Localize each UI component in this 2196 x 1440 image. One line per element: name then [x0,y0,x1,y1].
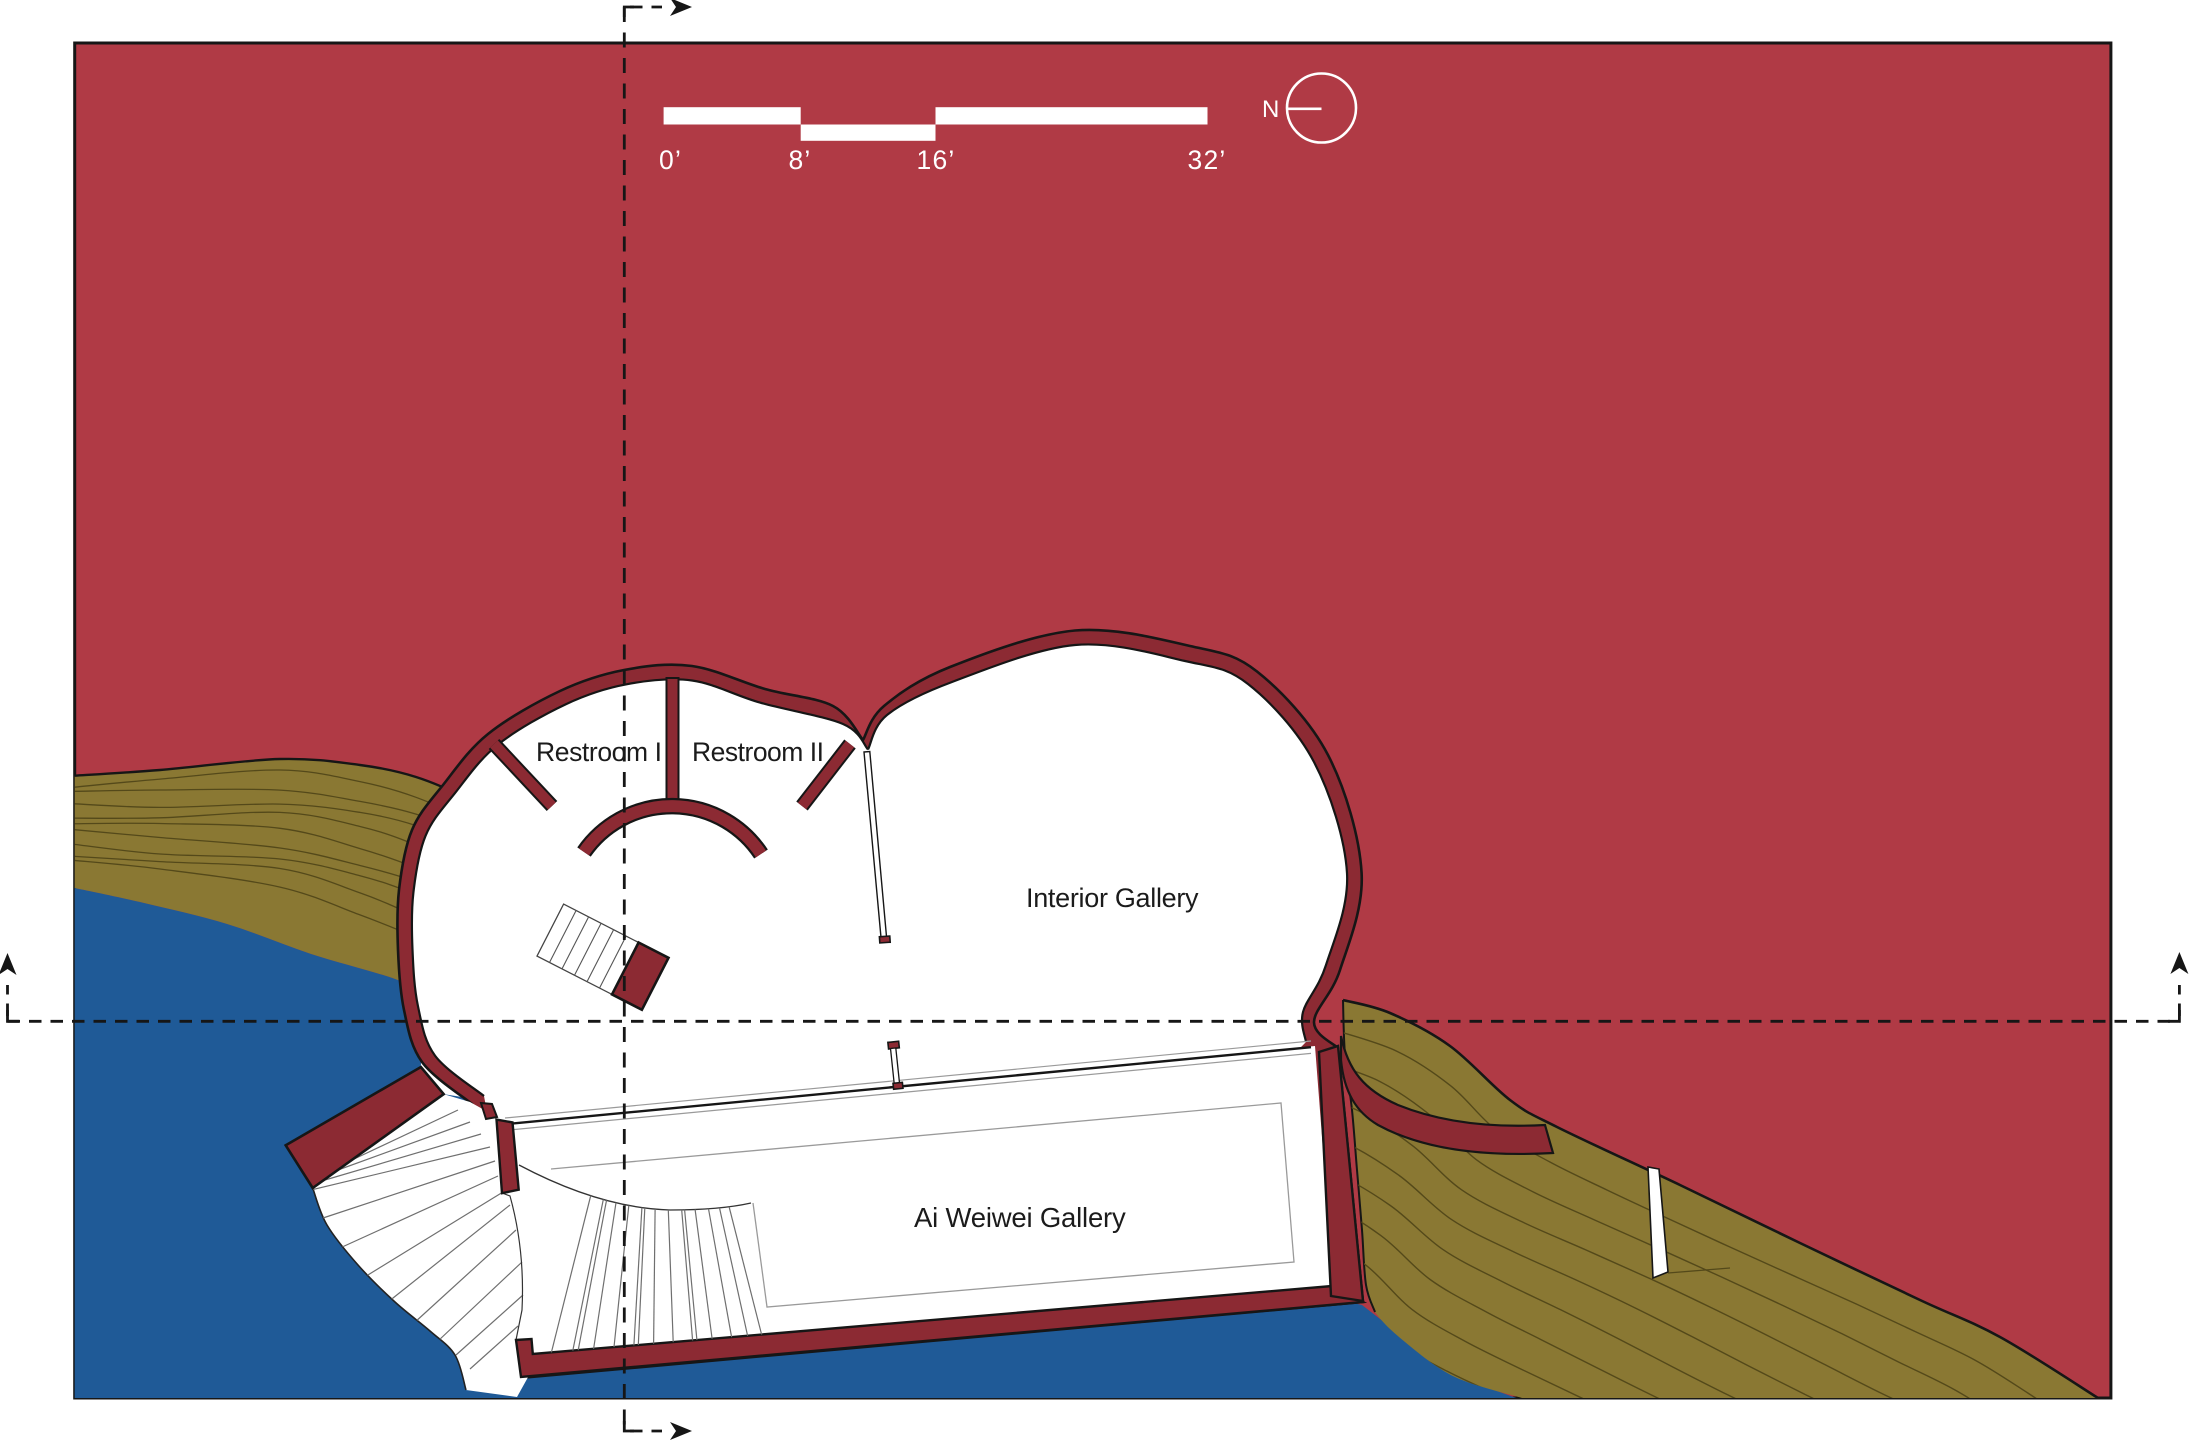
svg-text:0’: 0’ [659,145,682,175]
svg-text:Restroom I: Restroom I [536,737,662,767]
svg-text:8’: 8’ [788,145,811,175]
svg-text:32’: 32’ [1188,145,1227,175]
svg-text:Restroom II: Restroom II [692,737,823,767]
svg-text:Ai Weiwei Gallery: Ai Weiwei Gallery [914,1202,1126,1233]
svg-text:N: N [1262,96,1279,123]
svg-text:Interior Gallery: Interior Gallery [1026,883,1199,913]
svg-text:16’: 16’ [917,145,956,175]
